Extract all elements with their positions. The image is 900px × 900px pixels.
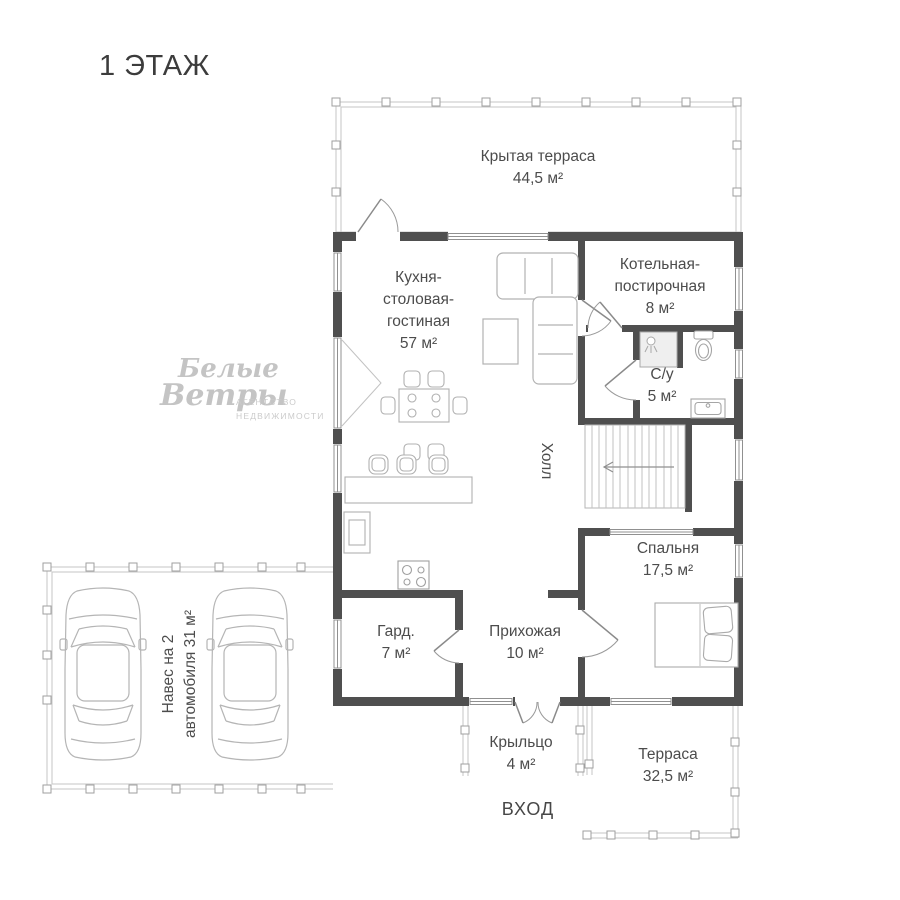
- floor-plan-page: 1 ЭТАЖ Белые Ветры АГЕНТСТВО НЕДВИЖИМОСТ…: [0, 0, 900, 900]
- room-area: 8 м²: [600, 298, 720, 320]
- shower: [640, 332, 677, 367]
- coffee-table: [483, 319, 518, 364]
- room-label-bathroom: С/у 5 м²: [612, 364, 712, 408]
- pillow: [703, 634, 733, 662]
- room-label-terrace: Терраса 32,5 м²: [607, 744, 729, 788]
- room-area: 57 м²: [366, 333, 471, 355]
- room-name: Крытая терраса: [438, 146, 638, 168]
- toilet: [694, 331, 713, 361]
- bed: [655, 603, 738, 667]
- bar-counter: [345, 455, 472, 503]
- room-label-boiler-laundry: Котельная-постирочная 8 м²: [600, 254, 720, 320]
- room-name: Терраса: [607, 744, 729, 766]
- entrance-label: ВХОД: [477, 797, 579, 823]
- room-area: автомобиля 31 м²: [180, 579, 202, 769]
- room-area: 4 м²: [460, 754, 582, 776]
- fridge: [344, 512, 370, 553]
- room-area: 7 м²: [346, 643, 446, 665]
- bedroom-door: [582, 610, 618, 657]
- car-2: [207, 588, 293, 760]
- car-1: [60, 588, 146, 760]
- page-title: 1 ЭТАЖ: [99, 50, 210, 83]
- staircase: [585, 425, 685, 508]
- room-area: 10 м²: [464, 643, 586, 665]
- room-name: Котельная-постирочная: [600, 254, 720, 298]
- room-label-porch: Крыльцо 4 м²: [460, 732, 582, 776]
- room-name: Навес на 2: [158, 579, 180, 769]
- terrace-door: [358, 199, 398, 232]
- room-name: Кухня-столовая-гостиная: [366, 267, 471, 333]
- room-label-hall: Холл: [535, 433, 557, 489]
- floor-plan-drawing: [0, 0, 900, 900]
- room-label-kitchen-living: Кухня-столовая-гостиная 57 м²: [366, 267, 471, 355]
- room-label-bedroom: Спальня 17,5 м²: [593, 538, 743, 582]
- pillow: [703, 606, 733, 634]
- room-name: Холл: [535, 433, 557, 489]
- room-name: Спальня: [593, 538, 743, 560]
- room-area: 32,5 м²: [607, 766, 729, 788]
- room-label-carport: Навес на 2 автомобиля 31 м²: [158, 579, 202, 769]
- room-name: Крыльцо: [460, 732, 582, 754]
- room-name: С/у: [612, 364, 712, 386]
- room-area: 17,5 м²: [593, 560, 743, 582]
- stove: [398, 561, 429, 589]
- room-name: Прихожая: [464, 621, 586, 643]
- dining-table: [381, 371, 467, 460]
- room-label-wardrobe: Гард. 7 м²: [346, 621, 446, 665]
- room-area: 44,5 м²: [438, 168, 638, 190]
- room-label-hallway: Прихожая 10 м²: [464, 621, 586, 665]
- room-label-covered-terrace: Крытая терраса 44,5 м²: [438, 146, 638, 190]
- room-area: 5 м²: [612, 386, 712, 408]
- room-name: Гард.: [346, 621, 446, 643]
